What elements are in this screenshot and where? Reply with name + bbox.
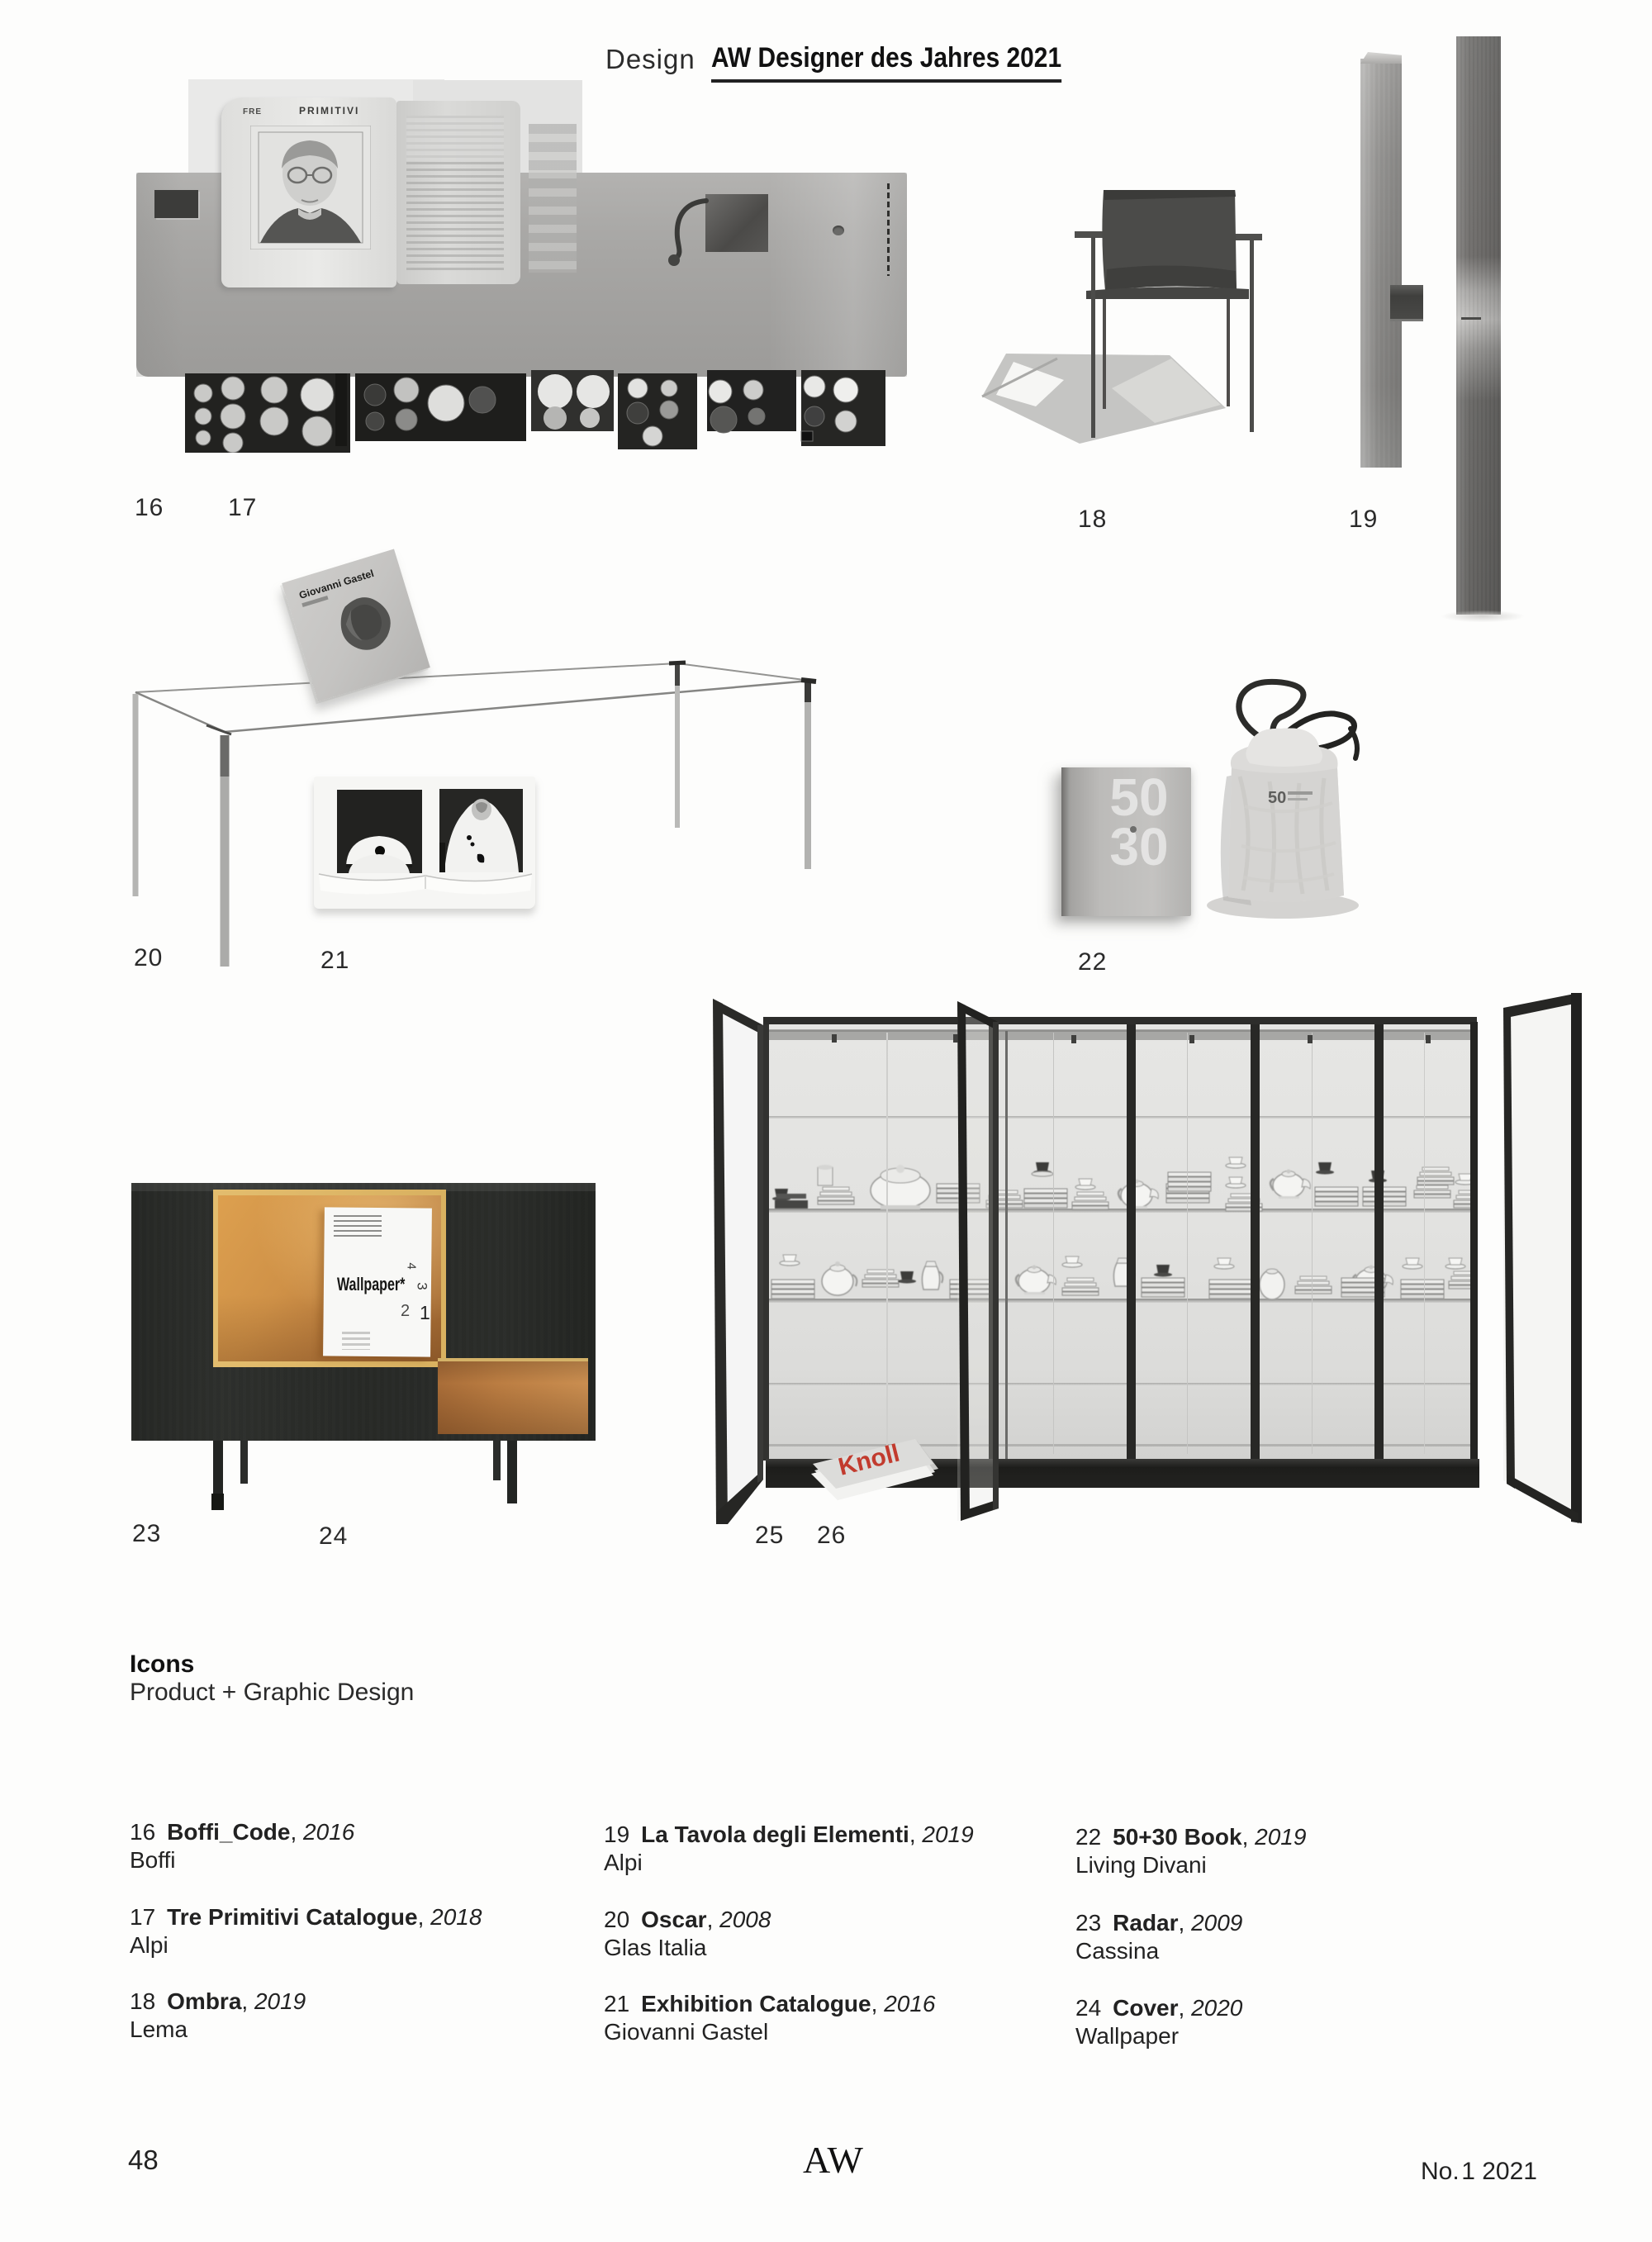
svg-text:50: 50 xyxy=(1268,789,1286,807)
svg-text:Giovanni Gastel: Giovanni Gastel xyxy=(297,568,375,601)
